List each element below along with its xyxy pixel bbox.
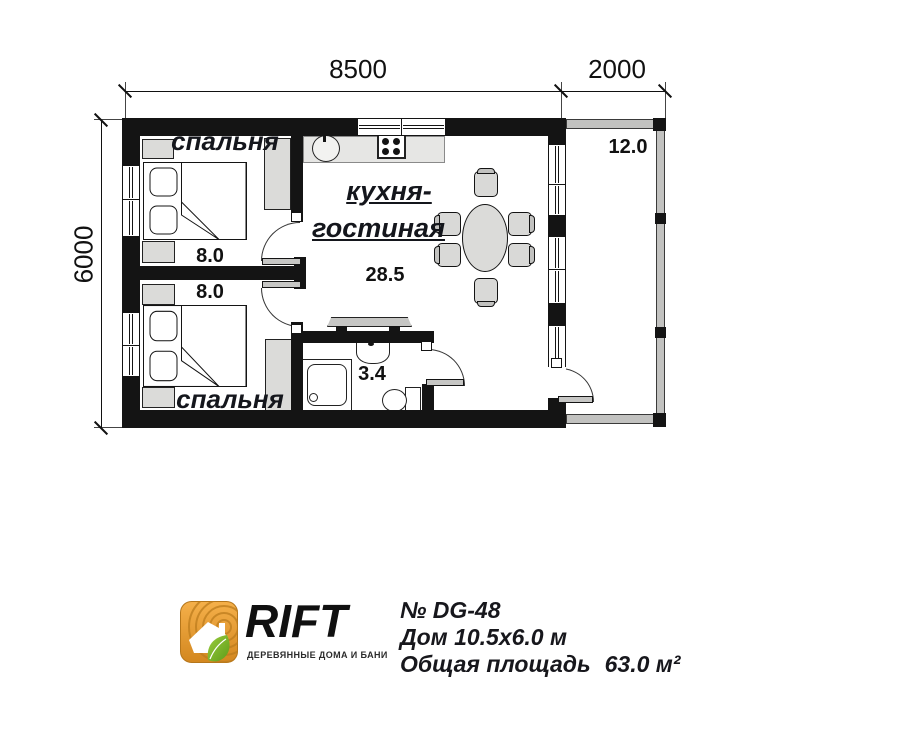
area-label-kitchen-living: 28.5 — [361, 264, 409, 287]
door-jamb-bathroom — [421, 341, 432, 351]
chair — [508, 212, 532, 236]
room-label-bedroom2: спальня — [175, 384, 285, 415]
area-label-bedroom2: 8.0 — [186, 281, 234, 304]
pillow — [150, 206, 177, 234]
entrance-door-jamb — [551, 358, 562, 368]
burner — [393, 148, 400, 155]
wall-bedrooms-divider — [140, 266, 303, 280]
window-bedroom1-left — [122, 165, 140, 200]
window-bedroom2-left — [122, 312, 140, 346]
entrance-door-leaf — [558, 396, 593, 403]
kitchen-sink — [312, 135, 340, 162]
door-leaf-bedroom2 — [262, 281, 301, 288]
pillow — [150, 311, 177, 340]
burner — [382, 148, 389, 155]
window-kitchen-top — [401, 118, 446, 136]
terrace-post — [655, 213, 666, 224]
dimension-line-left — [101, 120, 102, 428]
burner — [393, 138, 400, 145]
bed — [143, 162, 247, 240]
door-leaf-bedroom1 — [262, 258, 301, 265]
room-label-kitchen-line1: кухня- — [339, 176, 439, 207]
plan-total-area: Общая площадь63.0 м² — [400, 651, 680, 678]
tv-stand — [389, 326, 400, 332]
dining-table — [462, 204, 508, 272]
dimension-label-8500: 8500 — [308, 54, 408, 85]
window-living-right — [548, 236, 566, 270]
plan-info-block: № DG-48 Дом 10.5x6.0 м Общая площадь63.0… — [400, 597, 680, 678]
chair — [508, 243, 532, 267]
room-label-kitchen-line2: гостиная — [312, 213, 432, 244]
stove — [377, 133, 406, 159]
door-leaf-bathroom — [426, 379, 464, 386]
door-jamb-bedroom1 — [291, 212, 302, 222]
window-living-right — [548, 144, 566, 185]
toilet-bowl — [382, 389, 407, 412]
dimension-label-6000: 6000 — [69, 215, 100, 295]
wall-bathroom-right — [422, 384, 434, 410]
window-living-right — [548, 269, 566, 304]
wall-bathroom-top — [303, 331, 434, 343]
floor-plan-page: 8500 2000 6000 — [0, 0, 899, 745]
room-label-bedroom1: спальня — [170, 126, 280, 157]
plan-number: № DG-48 — [400, 597, 680, 624]
tv-stand — [336, 326, 347, 332]
area-label-terrace: 12.0 — [602, 136, 654, 159]
extension-line — [561, 82, 562, 119]
area-label-bedroom1: 8.0 — [186, 245, 234, 268]
window-bedroom1-left — [122, 199, 140, 237]
pillow — [150, 168, 177, 196]
window-bedroom2-left — [122, 345, 140, 377]
terrace-post — [655, 327, 666, 338]
entrance-door-opening — [548, 367, 566, 398]
chair — [474, 278, 498, 304]
nightstand — [142, 284, 175, 305]
rift-logo-text: RIFT — [245, 594, 347, 648]
nightstand — [142, 387, 175, 408]
kitchen-faucet-icon — [317, 132, 331, 135]
plan-size: Дом 10.5x6.0 м — [400, 624, 680, 651]
wall-divider-lower — [291, 322, 303, 410]
extension-line — [665, 82, 666, 119]
shower-drain — [309, 393, 318, 402]
terrace-corner — [653, 413, 666, 427]
dimension-label-2000: 2000 — [567, 54, 667, 85]
terrace-corner — [653, 118, 666, 131]
window-kitchen-top — [357, 118, 402, 136]
area-label-bathroom: 3.4 — [348, 363, 396, 386]
pillow — [150, 351, 177, 380]
chair — [437, 243, 461, 267]
terrace-wall-right — [656, 128, 665, 420]
wall-divider-upper — [291, 136, 303, 222]
burner — [382, 138, 389, 145]
terrace-wall-top — [566, 119, 656, 129]
rift-logo-icon — [180, 601, 238, 663]
door-jamb-bedroom2 — [291, 324, 302, 334]
plan-total-area-label: Общая площадь — [400, 651, 591, 677]
terrace-wall-bottom — [566, 414, 656, 424]
plan-total-area-value: 63.0 м² — [605, 651, 681, 677]
washbasin-faucet-icon — [368, 342, 374, 346]
dimension-line-top — [125, 91, 666, 92]
chair — [474, 171, 498, 197]
rift-logo-tagline: ДЕРЕВЯННЫЕ ДОМА И БАНИ — [247, 650, 388, 660]
bed — [143, 305, 247, 387]
extension-line — [125, 82, 126, 119]
nightstand — [142, 241, 175, 263]
door-arc-bedroom1 — [261, 222, 300, 261]
window-living-right — [548, 184, 566, 216]
